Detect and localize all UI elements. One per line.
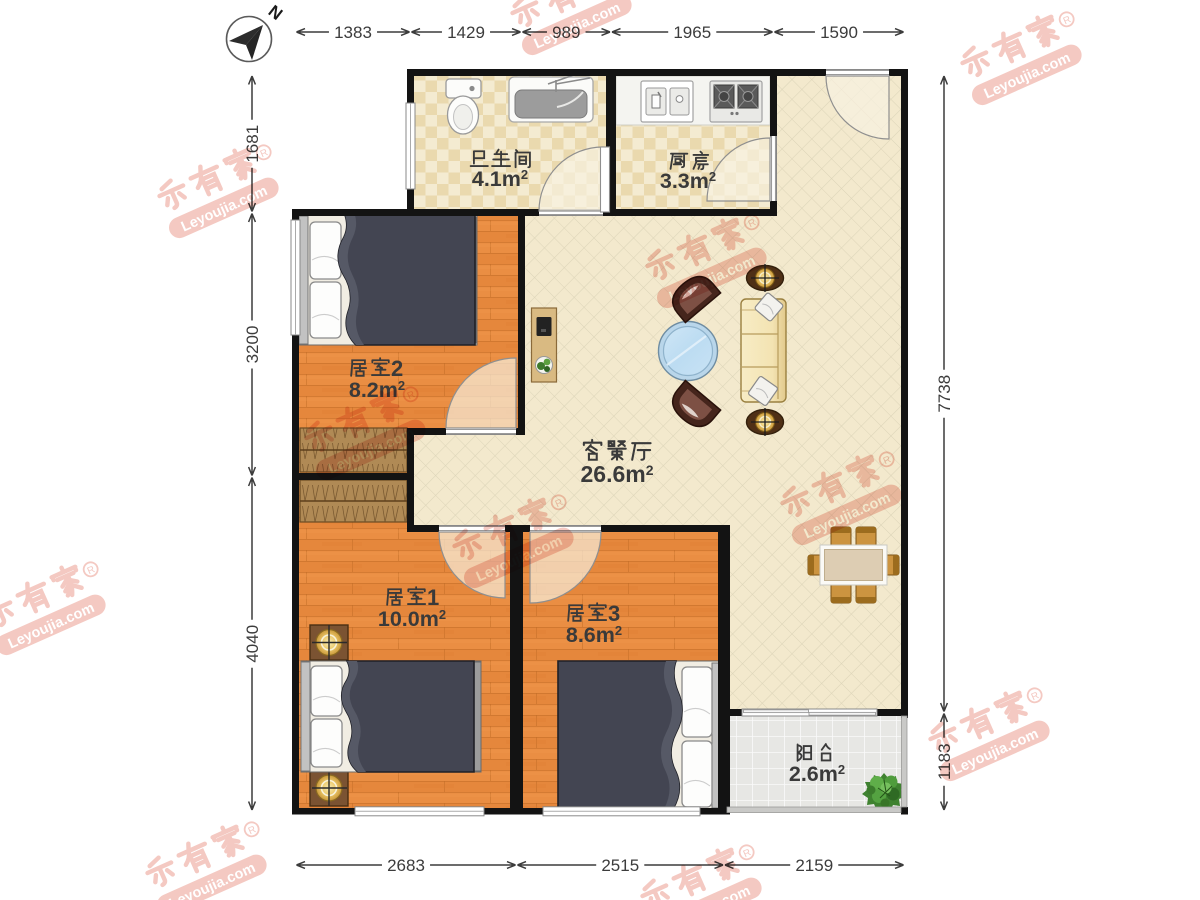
svg-text:2.6m2: 2.6m2 xyxy=(789,762,845,786)
svg-text:1383: 1383 xyxy=(334,23,372,42)
svg-text:1965: 1965 xyxy=(673,23,711,42)
svg-text:2159: 2159 xyxy=(795,856,833,875)
svg-text:10.0m2: 10.0m2 xyxy=(378,607,446,631)
svg-text:4.1m2: 4.1m2 xyxy=(472,167,528,191)
svg-text:1590: 1590 xyxy=(820,23,858,42)
svg-text:26.6m2: 26.6m2 xyxy=(580,461,653,487)
svg-text:8.6m2: 8.6m2 xyxy=(566,623,622,647)
svg-text:2683: 2683 xyxy=(387,856,425,875)
svg-text:4040: 4040 xyxy=(243,625,262,663)
svg-text:7738: 7738 xyxy=(935,375,954,413)
svg-text:1429: 1429 xyxy=(447,23,485,42)
svg-text:2515: 2515 xyxy=(601,856,639,875)
svg-text:3200: 3200 xyxy=(243,326,262,364)
svg-text:3.3m2: 3.3m2 xyxy=(660,169,716,193)
